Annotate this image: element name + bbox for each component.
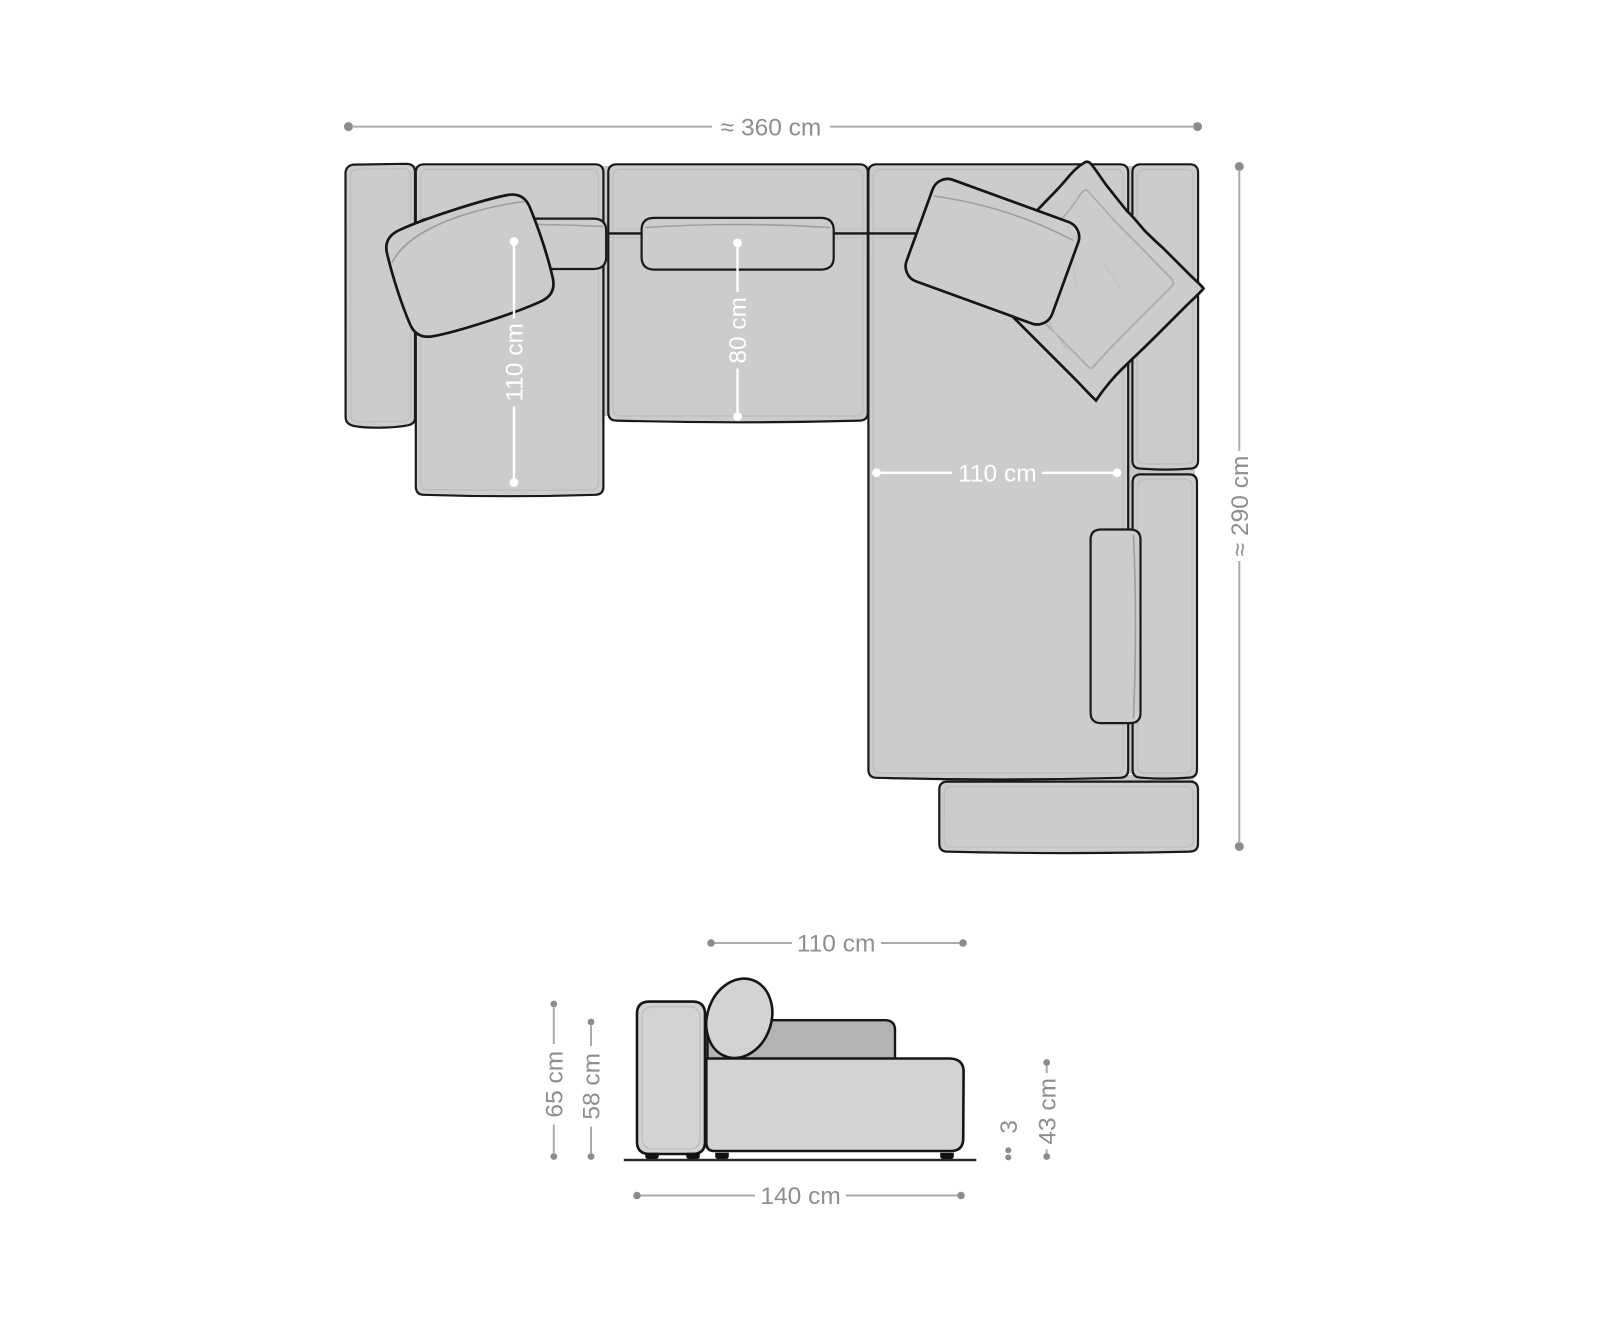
svg-text:65 cm: 65 cm bbox=[541, 1051, 568, 1118]
svg-text:140 cm: 140 cm bbox=[760, 1183, 840, 1210]
svg-text:80 cm: 80 cm bbox=[725, 297, 752, 364]
svg-text:3: 3 bbox=[996, 1120, 1023, 1134]
svg-text:110 cm: 110 cm bbox=[958, 461, 1037, 488]
svg-text:58 cm: 58 cm bbox=[579, 1053, 606, 1120]
svg-text:110 cm: 110 cm bbox=[502, 323, 529, 402]
svg-text:110 cm: 110 cm bbox=[797, 931, 876, 958]
svg-text:≈ 360 cm: ≈ 360 cm bbox=[721, 114, 822, 141]
svg-text:43 cm: 43 cm bbox=[1034, 1078, 1061, 1145]
svg-text:≈ 290 cm: ≈ 290 cm bbox=[1227, 456, 1254, 557]
